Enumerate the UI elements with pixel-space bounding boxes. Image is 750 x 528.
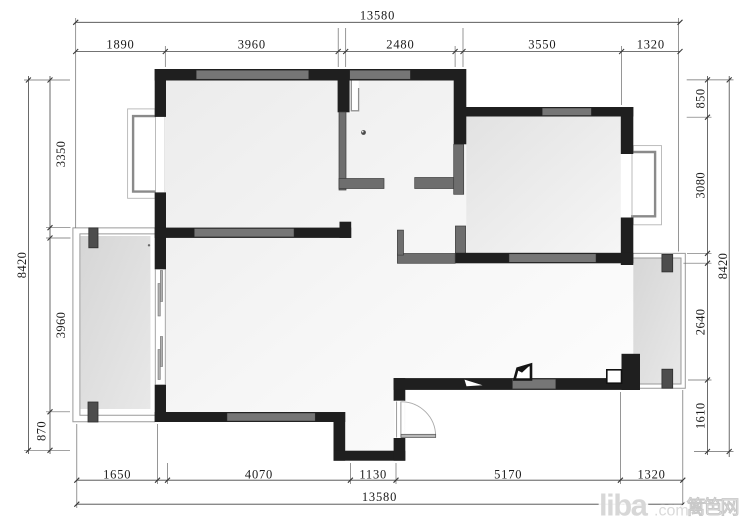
svg-text:4070: 4070	[245, 468, 273, 482]
svg-text:1610: 1610	[694, 402, 708, 429]
svg-text:3550: 3550	[528, 37, 556, 51]
svg-text:3960: 3960	[238, 37, 266, 51]
svg-text:1320: 1320	[637, 37, 665, 51]
svg-text:3960: 3960	[54, 312, 68, 339]
svg-text:1320: 1320	[637, 468, 665, 482]
svg-text:8420: 8420	[716, 253, 730, 280]
svg-text:篱笆网: 篱笆网	[687, 497, 739, 519]
svg-text:3350: 3350	[54, 141, 68, 168]
svg-text:850: 850	[694, 89, 708, 109]
svg-text:13580: 13580	[360, 9, 395, 23]
svg-text:3080: 3080	[694, 172, 708, 199]
svg-text:.com: .com	[654, 503, 689, 520]
svg-text:5170: 5170	[494, 468, 522, 482]
svg-text:2640: 2640	[694, 309, 708, 336]
svg-text:2480: 2480	[386, 37, 414, 51]
svg-text:liba: liba	[599, 488, 649, 523]
svg-text:870: 870	[35, 421, 49, 441]
svg-text:1650: 1650	[103, 468, 131, 482]
svg-text:1890: 1890	[106, 37, 134, 51]
svg-text:13580: 13580	[362, 490, 397, 504]
svg-text:8420: 8420	[15, 252, 29, 279]
svg-text:1130: 1130	[359, 468, 387, 482]
